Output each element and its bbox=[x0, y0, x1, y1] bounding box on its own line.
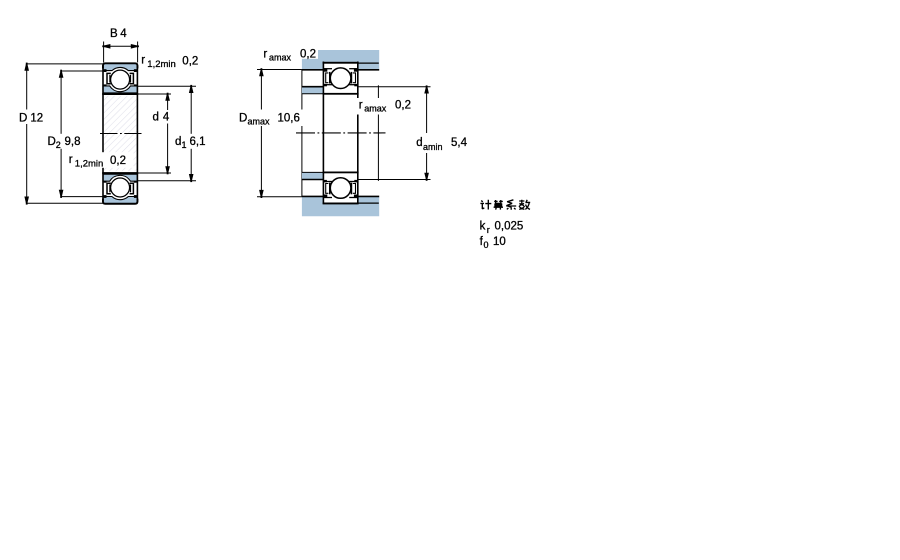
svg-text:5,4: 5,4 bbox=[451, 137, 468, 149]
svg-text:0,2: 0,2 bbox=[300, 48, 316, 60]
svg-text:D: D bbox=[239, 113, 247, 125]
svg-text:0,025: 0,025 bbox=[495, 221, 524, 233]
svg-text:1,2min: 1,2min bbox=[147, 59, 176, 70]
svg-text:D: D bbox=[48, 136, 56, 148]
svg-text:r: r bbox=[487, 225, 490, 235]
svg-text:d: d bbox=[175, 136, 181, 148]
svg-text:r: r bbox=[359, 100, 363, 112]
svg-text:6,1: 6,1 bbox=[190, 136, 206, 148]
svg-text:4: 4 bbox=[163, 112, 170, 124]
svg-text:0,2: 0,2 bbox=[182, 56, 198, 68]
svg-text:0,2: 0,2 bbox=[395, 100, 411, 112]
svg-text:d: d bbox=[416, 137, 422, 149]
svg-text:k: k bbox=[480, 221, 486, 233]
svg-text:10,6: 10,6 bbox=[278, 113, 300, 125]
svg-text:r: r bbox=[141, 55, 145, 67]
svg-text:2: 2 bbox=[56, 140, 61, 150]
svg-text:amax: amax bbox=[364, 104, 387, 114]
svg-text:amax: amax bbox=[248, 117, 271, 127]
svg-text:d: d bbox=[153, 112, 159, 124]
svg-text:10: 10 bbox=[493, 236, 506, 248]
svg-text:amax: amax bbox=[269, 52, 292, 62]
svg-text:B: B bbox=[110, 28, 118, 40]
svg-text:12: 12 bbox=[30, 113, 43, 125]
svg-text:r: r bbox=[263, 48, 267, 60]
svg-text:r: r bbox=[69, 154, 73, 166]
svg-text:0: 0 bbox=[484, 240, 489, 250]
svg-text:4: 4 bbox=[120, 28, 127, 40]
svg-text:0,2: 0,2 bbox=[110, 155, 126, 167]
svg-text:1: 1 bbox=[182, 140, 187, 150]
svg-text:D: D bbox=[19, 113, 27, 125]
svg-text:amin: amin bbox=[423, 142, 443, 152]
svg-text:9,8: 9,8 bbox=[65, 136, 81, 148]
svg-text:1,2min: 1,2min bbox=[75, 159, 104, 170]
